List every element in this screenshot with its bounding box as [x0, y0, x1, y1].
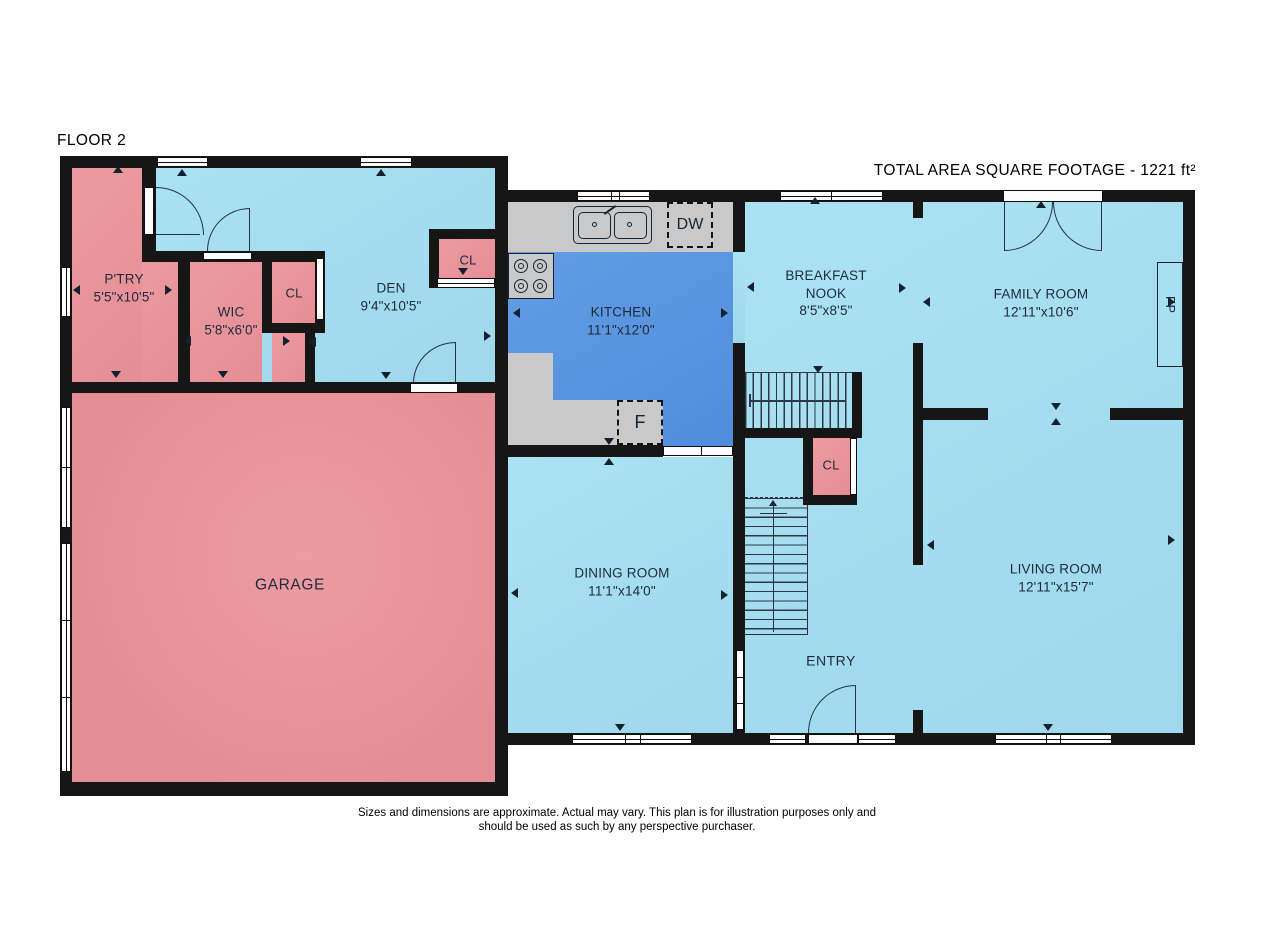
room-name: CL [285, 284, 302, 302]
opening-marker-icon [177, 169, 187, 176]
room-name: NOOK [785, 284, 866, 302]
room-dims: 9'4"x10'5" [360, 297, 421, 315]
wall [495, 156, 508, 796]
window [157, 157, 208, 167]
window [577, 191, 650, 201]
wall [733, 428, 862, 438]
stove-burner-icon [518, 283, 524, 289]
door-opening [808, 734, 858, 744]
entry-label: ENTRY [806, 652, 856, 670]
opening-marker-icon [927, 540, 934, 550]
wall [913, 710, 923, 733]
opening-marker-icon [1168, 535, 1175, 545]
stove-burner-icon [537, 263, 543, 269]
door-leaf-icon [1101, 202, 1102, 251]
opening-marker-icon [1168, 297, 1175, 307]
opening-marker-icon [615, 724, 625, 731]
door-leaf-icon [249, 208, 250, 251]
closet-door [316, 258, 324, 320]
page-title: FLOOR 2 [57, 132, 126, 150]
room-dims: 5'5"x10'5" [93, 288, 154, 306]
room-name: P'TRY [93, 271, 154, 289]
opening-marker-icon [113, 166, 123, 173]
opening-marker-icon [604, 458, 614, 465]
stairs-direction-line [760, 513, 787, 514]
wall [913, 343, 923, 565]
opening-marker-icon [283, 336, 290, 346]
opening-marker-icon [73, 285, 80, 295]
window [995, 734, 1112, 744]
opening-marker-icon [721, 590, 728, 600]
kitchen-label: KITCHEN 11'1"x12'0" [587, 304, 655, 339]
stove [508, 253, 554, 299]
room-name: GARAGE [255, 576, 325, 594]
sink-drain-icon [627, 222, 632, 227]
stairs-lower [745, 497, 808, 635]
window [769, 734, 806, 744]
room-name: CL [822, 456, 839, 474]
opening-marker-icon [721, 308, 728, 318]
refrigerator-label: F [635, 412, 646, 433]
wic-closet-label: CL [285, 284, 302, 302]
room-name: KITCHEN [587, 304, 655, 322]
kitchen-nook-opening [733, 252, 745, 343]
opening-marker-icon [309, 337, 316, 347]
window [61, 543, 71, 772]
door-opening [410, 383, 458, 393]
dining-room-label: DINING ROOM 11'1"x14'0" [574, 565, 669, 600]
room-dims: 8'5"x8'5" [785, 302, 866, 320]
fireplace [1157, 262, 1183, 367]
room-name: CL [459, 251, 476, 269]
opening-marker-icon [899, 283, 906, 293]
opening-marker-icon [1051, 418, 1061, 425]
floor-plan: FLOOR 2 TOTAL AREA SQUARE FOOTAGE - 1221… [0, 0, 1280, 943]
family-room-label: FAMILY ROOM 12'11"x10'6" [994, 286, 1089, 321]
door-opening [203, 252, 252, 260]
window [572, 734, 692, 744]
wall [508, 445, 663, 457]
opening-marker-icon [184, 336, 191, 346]
wic-label: WIC 5'8"x6'0" [204, 304, 257, 339]
opening-marker-icon [1043, 724, 1053, 731]
opening-marker-icon [810, 197, 820, 204]
den-closet-label: CL [459, 251, 476, 269]
room-dims: 5'8"x6'0" [204, 321, 257, 339]
disclaimer-line1: Sizes and dimensions are approximate. Ac… [217, 806, 1017, 820]
window [360, 157, 412, 167]
opening-marker-icon [813, 366, 823, 373]
stairs-direction-line [773, 506, 774, 632]
wall [178, 251, 190, 382]
stairs-up-arrow-icon [769, 500, 777, 506]
breakfast-nook-label: BREAKFAST NOOK 8'5"x8'5" [785, 267, 866, 320]
kitchen-counter-left [508, 353, 553, 447]
opening-marker-icon [511, 588, 518, 598]
room-name: FAMILY ROOM [994, 286, 1089, 304]
opening-marker-icon [484, 331, 491, 341]
wall [1110, 408, 1183, 420]
pass-through-opening [663, 446, 733, 456]
room-dims: 11'1"x14'0" [574, 582, 669, 600]
door-leaf-icon [455, 342, 456, 383]
room-dims: 12'11"x10'6" [994, 303, 1089, 321]
stove-burner-icon [518, 263, 524, 269]
pantry-label: P'TRY 5'5"x10'5" [93, 271, 154, 306]
living-room-label: LIVING ROOM 12'11"x15'7" [1010, 561, 1102, 596]
disclaimer: Sizes and dimensions are approximate. Ac… [217, 806, 1017, 834]
wall [918, 408, 988, 420]
opening-marker-icon [376, 169, 386, 176]
room-name: DEN [360, 280, 421, 298]
dishwasher: DW [667, 202, 713, 248]
opening-marker-icon [111, 371, 121, 378]
opening-marker-icon [381, 372, 391, 379]
window [736, 650, 744, 730]
entry-closet-label: CL [822, 456, 839, 474]
stairs-rail-icon [749, 400, 846, 402]
room-name: DINING ROOM [574, 565, 669, 583]
closet-door [850, 438, 857, 495]
wall [913, 202, 923, 218]
door-leaf-icon [156, 234, 200, 235]
garage-label: GARAGE [255, 576, 325, 594]
stove-burner-icon [537, 283, 543, 289]
window [61, 407, 71, 528]
opening-marker-icon [747, 282, 754, 292]
window [61, 267, 71, 317]
wall [60, 782, 508, 796]
opening-marker-icon [923, 297, 930, 307]
disclaimer-line2: should be used as such by any perspectiv… [217, 820, 1017, 834]
opening-marker-icon [513, 308, 520, 318]
room-name: BREAKFAST [785, 267, 866, 285]
room-dims: 12'11"x15'7" [1010, 578, 1102, 596]
closet-door [437, 278, 495, 288]
opening-marker-icon [1036, 201, 1046, 208]
door-opening [144, 187, 154, 235]
wall [803, 495, 857, 505]
opening-marker-icon [218, 371, 228, 378]
room-name: ENTRY [806, 652, 856, 670]
door-opening [1003, 190, 1103, 202]
den-label: DEN 9'4"x10'5" [360, 280, 421, 315]
wall [733, 190, 745, 252]
sink-drain-icon [592, 222, 597, 227]
room-name: WIC [204, 304, 257, 322]
room-dims: 11'1"x12'0" [587, 321, 655, 339]
wall [60, 156, 508, 168]
wall [429, 229, 495, 239]
window [780, 191, 883, 201]
opening-marker-icon [604, 438, 614, 445]
dishwasher-label: DW [677, 216, 704, 234]
opening-marker-icon [458, 268, 468, 275]
opening-marker-icon [1051, 403, 1061, 410]
stairs-rail-icon [749, 394, 751, 407]
wall [1183, 190, 1195, 745]
door-leaf-icon [855, 685, 856, 733]
window [858, 734, 896, 744]
room-name: LIVING ROOM [1010, 561, 1102, 579]
opening-marker-icon [165, 285, 172, 295]
total-area-label: TOTAL AREA SQUARE FOOTAGE - 1221 ft² [874, 162, 1196, 180]
refrigerator: F [617, 400, 663, 445]
door-leaf-icon [1004, 202, 1005, 251]
